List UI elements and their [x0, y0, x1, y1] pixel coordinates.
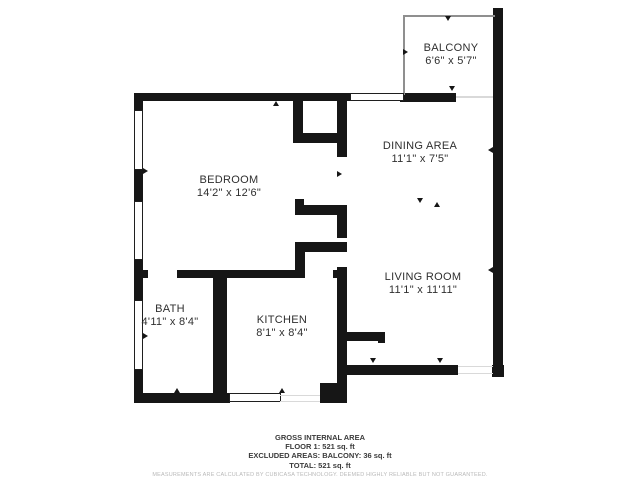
measure-arrow — [434, 202, 440, 207]
room-label-living-room: LIVING ROOM11'1" x 11'11" — [385, 271, 462, 297]
wall — [134, 393, 230, 403]
measurement-disclaimer: MEASUREMENTS ARE CALCULATED BY CUBICASA … — [0, 471, 640, 480]
room-dimensions-balcony: 6'6" x 5'7" — [424, 55, 479, 68]
room-label-kitchen: KITCHEN8'1" x 8'4" — [256, 314, 307, 340]
room-name-bath: BATH — [142, 303, 199, 316]
window — [350, 93, 404, 101]
room-label-bedroom: BEDROOM14'2" x 12'6" — [197, 174, 261, 200]
room-dimensions-bedroom: 14'2" x 12'6" — [197, 187, 261, 200]
room-dimensions-bath: 4'11" x 8'4" — [142, 316, 199, 329]
floor-plan-canvas: BALCONY6'6" x 5'7"DINING AREA11'1" x 7'5… — [0, 0, 640, 480]
door-threshold — [456, 96, 493, 98]
door-threshold — [280, 395, 320, 396]
room-dimensions-dining-area: 11'1" x 7'5" — [383, 153, 457, 166]
wall — [134, 93, 352, 101]
wall — [295, 205, 347, 215]
measure-arrow — [445, 16, 451, 21]
wall — [337, 93, 347, 157]
window — [134, 110, 143, 170]
measure-arrow — [273, 101, 279, 106]
door-threshold — [458, 373, 493, 374]
room-label-balcony: BALCONY6'6" x 5'7" — [424, 42, 479, 68]
measure-arrow — [488, 267, 493, 273]
wall — [492, 365, 504, 377]
wall — [493, 8, 503, 377]
gross-internal-area-label: GROSS INTERNAL AREA — [0, 433, 640, 442]
wall — [300, 133, 347, 143]
wall — [337, 365, 458, 375]
wall — [177, 270, 305, 278]
measure-arrow — [143, 168, 148, 174]
room-name-living-room: LIVING ROOM — [385, 271, 462, 284]
measure-arrow — [403, 49, 408, 55]
room-name-bedroom: BEDROOM — [197, 174, 261, 187]
measure-arrow — [337, 171, 342, 177]
wall — [295, 242, 305, 278]
measure-arrow — [449, 86, 455, 91]
room-name-balcony: BALCONY — [424, 42, 479, 55]
wall — [134, 258, 143, 302]
window — [229, 393, 281, 402]
balcony-railing — [403, 15, 405, 95]
total-area-value: TOTAL: 521 sq. ft — [0, 461, 640, 470]
window — [134, 201, 143, 260]
floor-plan-screenshot: BALCONY6'6" x 5'7"DINING AREA11'1" x 7'5… — [0, 0, 640, 480]
room-dimensions-living-room: 11'1" x 11'11" — [385, 284, 462, 297]
room-name-kitchen: KITCHEN — [256, 314, 307, 327]
measure-arrow — [174, 388, 180, 393]
wall — [134, 168, 143, 203]
room-dimensions-kitchen: 8'1" x 8'4" — [256, 327, 307, 340]
measure-arrow — [279, 388, 285, 393]
measure-arrow — [417, 198, 423, 203]
wall — [213, 272, 227, 402]
room-name-dining-area: DINING AREA — [383, 140, 457, 153]
room-label-bath: BATH4'11" x 8'4" — [142, 303, 199, 329]
wall — [378, 332, 385, 343]
wall — [134, 270, 148, 278]
measure-arrow — [437, 358, 443, 363]
door-threshold — [280, 401, 320, 402]
wall — [400, 93, 456, 102]
room-label-dining-area: DINING AREA11'1" x 7'5" — [383, 140, 457, 166]
area-summary: GROSS INTERNAL AREA FLOOR 1: 521 sq. ft … — [0, 433, 640, 480]
floor1-area-value: FLOOR 1: 521 sq. ft — [0, 442, 640, 451]
excluded-areas-value: EXCLUDED AREAS: BALCONY: 36 sq. ft — [0, 451, 640, 460]
door-threshold — [458, 366, 493, 367]
measure-arrow — [370, 358, 376, 363]
measure-arrow — [488, 147, 493, 153]
measure-arrow — [143, 333, 148, 339]
